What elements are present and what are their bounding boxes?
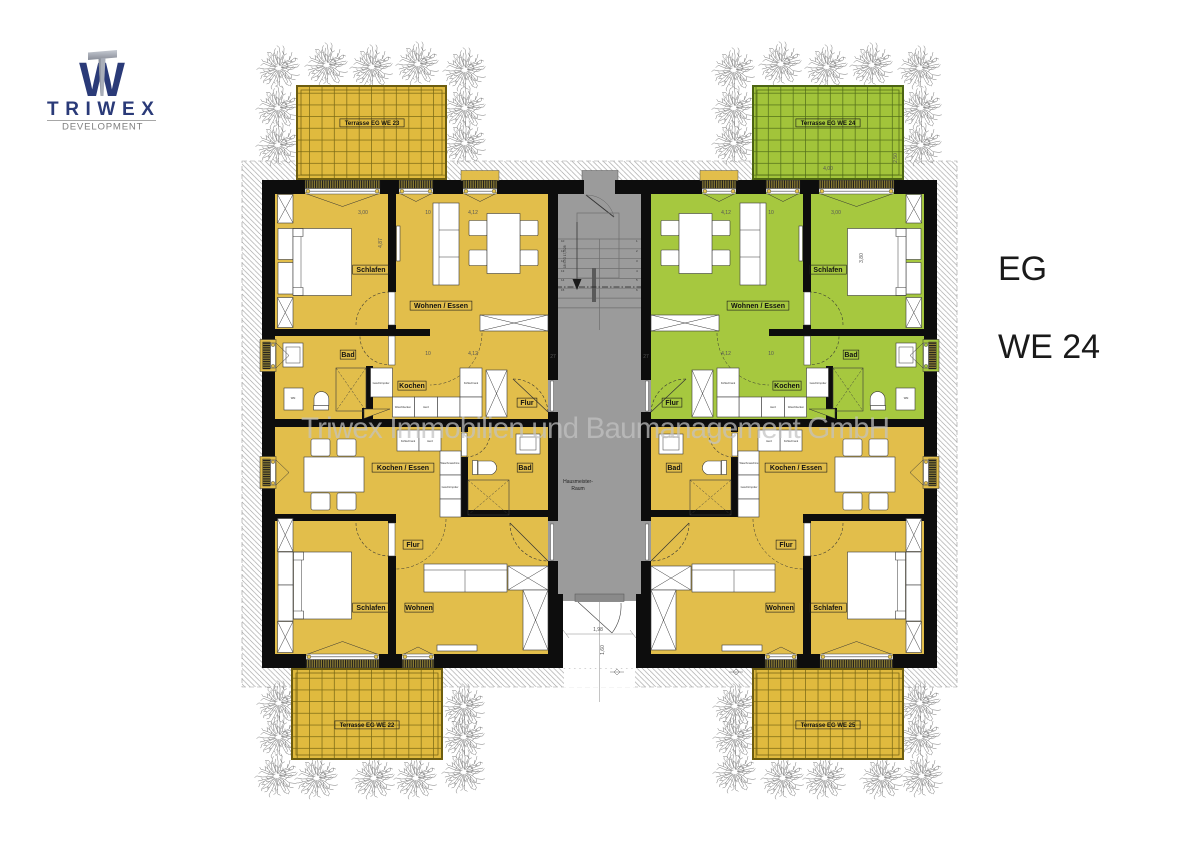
svg-text:Geschirrspüler: Geschirrspüler [741, 485, 758, 489]
svg-text:Flur: Flur [779, 542, 792, 549]
svg-text:Kochen / Essen: Kochen / Essen [770, 465, 822, 472]
svg-text:Geschirrspüler: Geschirrspüler [373, 381, 390, 385]
svg-text:Flur: Flur [406, 542, 419, 549]
svg-text:Terrasse EG WE 23: Terrasse EG WE 23 [345, 121, 400, 127]
svg-text:Geschirrspüler: Geschirrspüler [442, 485, 459, 489]
svg-text:4,12: 4,12 [721, 351, 731, 357]
svg-text:Kochen: Kochen [399, 383, 425, 390]
svg-text:4,00: 4,00 [823, 166, 833, 172]
svg-text:Bad: Bad [341, 352, 354, 359]
svg-text:4,12: 4,12 [468, 351, 478, 357]
svg-text:Raum: Raum [571, 486, 584, 492]
svg-text:Triwex Immobilien und Baumanag: Triwex Immobilien und Baumanagement GmbH [301, 412, 889, 445]
svg-text:4,87: 4,87 [378, 238, 384, 248]
svg-text:WE 24: WE 24 [998, 328, 1100, 366]
svg-text:Wohnen / Essen: Wohnen / Essen [414, 303, 468, 310]
svg-text:WM: WM [904, 396, 909, 400]
svg-text:1,60: 1,60 [600, 645, 606, 655]
svg-text:Kühlschrank: Kühlschrank [721, 381, 736, 385]
svg-text:Flur: Flur [665, 400, 678, 407]
svg-text:13: 13 [561, 269, 565, 273]
svg-text:10: 10 [425, 351, 431, 357]
svg-text:3,00: 3,00 [831, 210, 841, 216]
svg-text:Terrasse EG WE 22: Terrasse EG WE 22 [340, 723, 395, 729]
svg-text:WM: WM [291, 396, 296, 400]
svg-text:DEVELOPMENT: DEVELOPMENT [62, 122, 143, 133]
svg-text:Terrasse EG WE 24: Terrasse EG WE 24 [801, 121, 856, 127]
svg-text:Schlafen: Schlafen [356, 267, 385, 274]
svg-text:Waschmaschine: Waschmaschine [740, 461, 759, 465]
svg-text:18 STG 17,5/28: 18 STG 17,5/28 [563, 245, 567, 268]
svg-text:10: 10 [768, 210, 774, 216]
svg-text:Bad: Bad [844, 352, 857, 359]
svg-text:27: 27 [643, 354, 649, 360]
svg-text:Waschbecken: Waschbecken [788, 405, 805, 409]
svg-text:4,12: 4,12 [468, 210, 478, 216]
svg-text:Wohnen: Wohnen [405, 605, 432, 612]
svg-text:27: 27 [550, 354, 556, 360]
svg-text:TRIWEX: TRIWEX [47, 99, 161, 120]
svg-text:Herd: Herd [423, 405, 429, 409]
svg-text:Wohnen / Essen: Wohnen / Essen [731, 303, 785, 310]
svg-text:Herd: Herd [770, 405, 776, 409]
svg-text:EG: EG [998, 250, 1047, 288]
svg-text:2,50: 2,50 [893, 153, 899, 163]
svg-text:Kochen: Kochen [774, 383, 800, 390]
svg-text:10: 10 [425, 210, 431, 216]
svg-text:Flur: Flur [520, 400, 533, 407]
svg-text:10: 10 [561, 239, 565, 243]
svg-text:1,98: 1,98 [593, 627, 603, 633]
svg-text:14: 14 [561, 278, 565, 282]
svg-text:Wohnen: Wohnen [766, 605, 793, 612]
svg-text:4,12: 4,12 [721, 210, 731, 216]
svg-text:Kühlschrank: Kühlschrank [464, 381, 479, 385]
svg-text:Waschbecken: Waschbecken [395, 405, 412, 409]
svg-text:Schlafen: Schlafen [813, 267, 842, 274]
svg-text:Terrasse EG WE 25: Terrasse EG WE 25 [801, 723, 856, 729]
svg-text:Bad: Bad [667, 465, 680, 472]
svg-text:Bad: Bad [518, 465, 531, 472]
svg-text:3,00: 3,00 [358, 210, 368, 216]
svg-text:Kochen / Essen: Kochen / Essen [377, 465, 429, 472]
svg-text:Geschirrspüler: Geschirrspüler [810, 381, 827, 385]
svg-text:Schlafen: Schlafen [356, 605, 385, 612]
svg-text:3,80: 3,80 [859, 253, 865, 263]
svg-text:Hausmeister-: Hausmeister- [563, 479, 593, 485]
svg-text:15: 15 [561, 288, 565, 292]
svg-text:Waschmaschine: Waschmaschine [441, 461, 460, 465]
svg-text:Schlafen: Schlafen [813, 605, 842, 612]
svg-text:10: 10 [768, 351, 774, 357]
